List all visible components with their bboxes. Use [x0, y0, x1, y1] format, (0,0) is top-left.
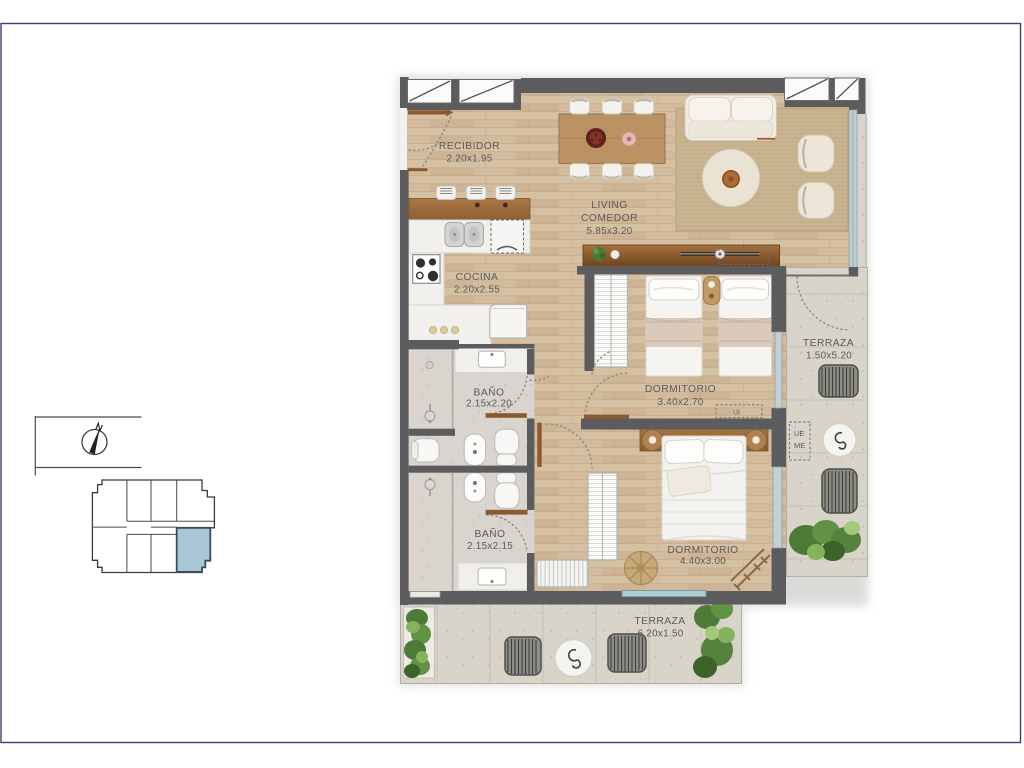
svg-text:2.15x2.20: 2.15x2.20	[466, 399, 512, 410]
svg-text:LIVING: LIVING	[591, 200, 627, 211]
svg-text:2.20x1.95: 2.20x1.95	[446, 154, 492, 165]
svg-text:UI: UI	[733, 410, 740, 417]
svg-text:COMEDOR: COMEDOR	[581, 213, 638, 224]
svg-text:4.40x3.00: 4.40x3.00	[680, 556, 726, 567]
svg-text:3.40x2.70: 3.40x2.70	[657, 397, 703, 408]
svg-text:5.85x3.20: 5.85x3.20	[586, 226, 632, 237]
svg-text:UI: UI	[737, 257, 744, 264]
svg-text:DORMITORIO: DORMITORIO	[645, 384, 716, 395]
svg-text:6.20x1.50: 6.20x1.50	[637, 629, 683, 640]
svg-text:1.50x5.20: 1.50x5.20	[806, 351, 852, 362]
svg-text:COCINA: COCINA	[456, 272, 499, 283]
svg-text:RECIBIDOR: RECIBIDOR	[439, 141, 500, 152]
svg-text:DORMITORIO: DORMITORIO	[667, 545, 738, 556]
svg-text:2.20x2.55: 2.20x2.55	[454, 285, 500, 296]
svg-text:BAÑO: BAÑO	[475, 527, 506, 540]
svg-text:UE: UE	[794, 429, 804, 438]
svg-text:TERRAZA: TERRAZA	[634, 616, 685, 627]
svg-text:ME: ME	[794, 441, 805, 450]
svg-text:TERRAZA: TERRAZA	[803, 338, 854, 349]
svg-text:2.15x2.15: 2.15x2.15	[467, 541, 513, 552]
svg-text:BAÑO: BAÑO	[474, 386, 505, 399]
